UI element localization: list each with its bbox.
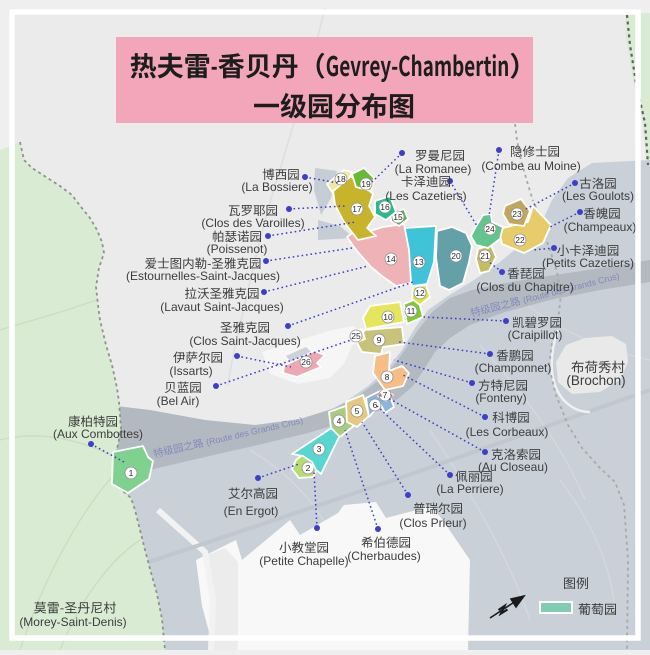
svg-text:(Champeaux): (Champeaux) xyxy=(564,220,637,234)
svg-text:13: 13 xyxy=(414,257,424,267)
svg-text:(Craipillot): (Craipillot) xyxy=(508,328,563,342)
svg-text:(Issarts): (Issarts) xyxy=(169,364,212,378)
svg-text:(Poissenot): (Poissenot) xyxy=(207,242,268,256)
svg-text:18: 18 xyxy=(336,174,346,184)
svg-text:19: 19 xyxy=(361,179,371,189)
svg-text:(Champonnet): (Champonnet) xyxy=(475,361,552,375)
svg-text:(La Romanee): (La Romanee) xyxy=(395,162,472,176)
svg-text:(Petits Cazetiers): (Petits Cazetiers) xyxy=(542,256,634,270)
svg-text:(La Perriere): (La Perriere) xyxy=(436,482,503,496)
svg-text:1: 1 xyxy=(129,468,134,478)
svg-text:(La Bossiere): (La Bossiere) xyxy=(241,180,312,194)
svg-text:(Lavaut Saint-Jacques): (Lavaut Saint-Jacques) xyxy=(160,300,283,314)
svg-text:10: 10 xyxy=(383,312,393,322)
svg-text:(Clos du Chapitre): (Clos du Chapitre) xyxy=(476,280,573,294)
svg-text:8: 8 xyxy=(385,372,390,382)
svg-text:9: 9 xyxy=(377,335,382,345)
svg-text:(Combe au Moine): (Combe au Moine) xyxy=(481,159,580,173)
svg-text:11: 11 xyxy=(407,306,416,316)
svg-text:(Clos Saint-Jacques): (Clos Saint-Jacques) xyxy=(189,334,300,348)
svg-text:12: 12 xyxy=(415,288,425,298)
svg-text:(Aux Combottes): (Aux Combottes) xyxy=(53,427,143,441)
svg-text:(Clos des Varoilles): (Clos des Varoilles) xyxy=(201,216,304,230)
svg-text:2: 2 xyxy=(306,463,311,473)
svg-text:(Petite Chapelle): (Petite Chapelle) xyxy=(259,554,348,568)
svg-text:(Morey-Saint-Denis): (Morey-Saint-Denis) xyxy=(19,615,126,629)
svg-text:23: 23 xyxy=(512,209,522,219)
svg-text:(Cherbaudes): (Cherbaudes) xyxy=(347,549,420,563)
svg-text:16: 16 xyxy=(380,202,390,212)
svg-text:21: 21 xyxy=(480,251,490,261)
svg-text:24: 24 xyxy=(485,224,495,234)
svg-text:22: 22 xyxy=(515,235,525,245)
svg-text:25: 25 xyxy=(351,331,361,341)
svg-text:(Les Corbeaux): (Les Corbeaux) xyxy=(466,425,549,439)
svg-text:7: 7 xyxy=(383,390,388,400)
svg-text:(Estournelles-Saint-Jacques): (Estournelles-Saint-Jacques) xyxy=(126,269,280,283)
svg-text:(Les Goulots): (Les Goulots) xyxy=(562,189,634,203)
svg-text:3: 3 xyxy=(317,444,322,454)
svg-text:(Fonteny): (Fonteny) xyxy=(475,391,526,405)
svg-text:(Bel Air): (Bel Air) xyxy=(157,394,200,408)
svg-text:26: 26 xyxy=(301,357,311,367)
svg-text:17: 17 xyxy=(352,204,362,214)
svg-text:5: 5 xyxy=(355,406,360,416)
svg-text:6: 6 xyxy=(373,400,378,410)
svg-text:14: 14 xyxy=(386,254,396,264)
svg-text:(Brochon): (Brochon) xyxy=(566,373,625,388)
svg-text:(Clos Prieur): (Clos Prieur) xyxy=(399,516,466,530)
svg-text:(En Ergot): (En Ergot) xyxy=(224,504,279,518)
svg-text:4: 4 xyxy=(337,416,342,426)
svg-text:(Les Cazetiers): (Les Cazetiers) xyxy=(385,189,466,203)
svg-text:20: 20 xyxy=(451,251,461,261)
